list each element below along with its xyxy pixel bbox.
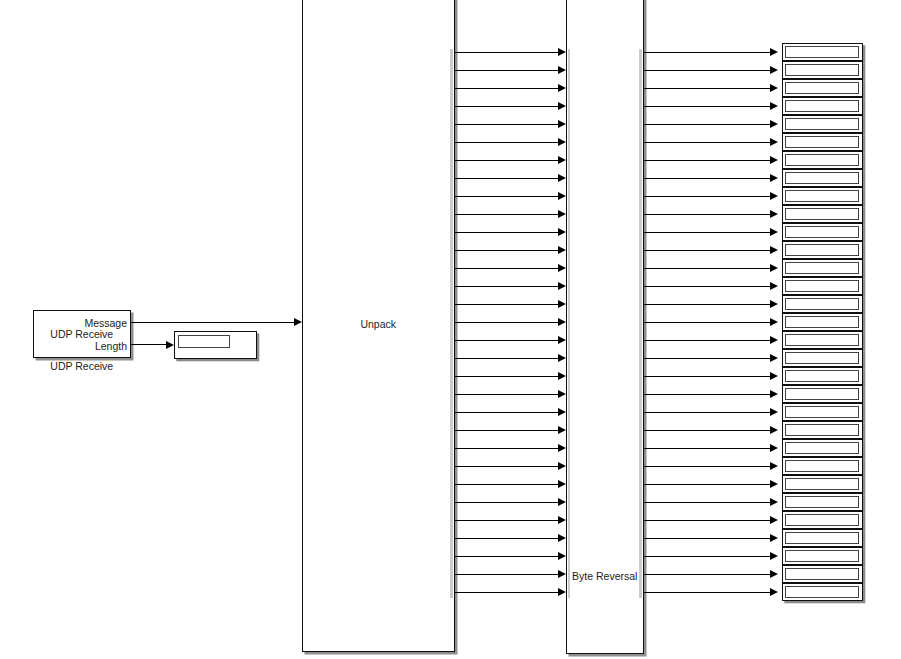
arrowhead-icon: [558, 354, 566, 362]
display-value-box: [785, 226, 859, 238]
wire-byte-reversal-to-display-2[interactable]: [644, 70, 771, 72]
wire-unpack-to-byte-reversal-30[interactable]: [454, 574, 558, 576]
wire-unpack-to-byte-reversal-2[interactable]: [454, 70, 558, 72]
display-block-24[interactable]: [782, 457, 863, 475]
display-block-15[interactable]: [782, 295, 863, 313]
arrowhead-icon: [558, 570, 566, 578]
display-block-13[interactable]: [782, 259, 863, 277]
wire-message-to-unpack[interactable]: [131, 322, 295, 324]
arrowhead-icon: [770, 354, 778, 362]
arrowhead-icon: [558, 84, 566, 92]
byte-reversal-output-port-numbers-smear: [639, 49, 642, 598]
display-value-box: [785, 352, 859, 364]
arrowhead-icon: [770, 408, 778, 416]
arrowhead-icon: [770, 102, 778, 110]
wire-unpack-to-byte-reversal-24[interactable]: [454, 466, 558, 468]
display-value-box: [785, 244, 859, 256]
display-block-28[interactable]: [782, 529, 863, 547]
arrowhead-icon: [770, 588, 778, 596]
display-block-22[interactable]: [782, 421, 863, 439]
wire-unpack-to-byte-reversal-11[interactable]: [454, 232, 558, 234]
wire-unpack-to-byte-reversal-4[interactable]: [454, 106, 558, 108]
arrowhead-icon: [558, 138, 566, 146]
arrowhead-icon: [770, 570, 778, 578]
display-value-box: [785, 154, 859, 166]
arrowhead-icon: [770, 264, 778, 272]
wire-unpack-to-byte-reversal-31[interactable]: [454, 592, 558, 594]
display-block-4[interactable]: [782, 97, 863, 115]
arrowhead-icon: [558, 336, 566, 344]
arrowhead-icon: [558, 102, 566, 110]
display-block-18[interactable]: [782, 349, 863, 367]
wire-byte-reversal-to-display-26[interactable]: [644, 502, 771, 504]
arrowhead-icon: [558, 588, 566, 596]
display-block-10[interactable]: [782, 205, 863, 223]
arrowhead-icon: [558, 426, 566, 434]
display-value-box: [785, 298, 859, 310]
wire-byte-reversal-to-display-22[interactable]: [644, 430, 771, 432]
wire-unpack-to-byte-reversal-12[interactable]: [454, 250, 558, 252]
arrowhead-icon: [770, 282, 778, 290]
display-value-box: [785, 532, 859, 544]
arrowhead-icon: [770, 552, 778, 560]
wire-unpack-to-byte-reversal-25[interactable]: [454, 484, 558, 486]
display-value-box: [785, 64, 859, 76]
wire-byte-reversal-to-display-27[interactable]: [644, 520, 771, 522]
simulink-diagram-canvas: Message UDP Receive Length UDP Receive U…: [0, 0, 901, 659]
arrowhead-icon: [558, 444, 566, 452]
display-value-box: [785, 442, 859, 454]
byte-reversal-input-port-numbers-smear: [568, 49, 571, 598]
wire-byte-reversal-to-display-24[interactable]: [644, 466, 771, 468]
wire-unpack-to-byte-reversal-7[interactable]: [454, 160, 558, 162]
udp-output-port-label-length: Length: [95, 340, 127, 352]
arrowhead-icon: [770, 372, 778, 380]
arrowhead-icon: [770, 120, 778, 128]
wire-unpack-to-byte-reversal-19[interactable]: [454, 376, 558, 378]
display-value-box: [785, 586, 859, 598]
wire-byte-reversal-to-display-23[interactable]: [644, 448, 771, 450]
arrowhead-icon: [558, 300, 566, 308]
arrowhead-icon: [558, 66, 566, 74]
wire-byte-reversal-to-display-16[interactable]: [644, 322, 771, 324]
wire-unpack-to-byte-reversal-3[interactable]: [454, 88, 558, 90]
arrowhead-icon: [558, 156, 566, 164]
arrowhead-icon: [558, 282, 566, 290]
arrowhead-icon: [558, 264, 566, 272]
display-value-box: [785, 208, 859, 220]
arrowhead-icon: [558, 534, 566, 542]
wire-byte-reversal-to-display-5[interactable]: [644, 124, 771, 126]
wire-byte-reversal-to-display-21[interactable]: [644, 412, 771, 414]
arrowhead-icon: [558, 192, 566, 200]
arrowhead-icon: [558, 48, 566, 56]
display-block-27[interactable]: [782, 511, 863, 529]
display-block-17[interactable]: [782, 331, 863, 349]
display-block-1[interactable]: [782, 43, 863, 61]
wire-unpack-to-byte-reversal-13[interactable]: [454, 268, 558, 270]
display-value-box: [178, 335, 230, 349]
display-block-6[interactable]: [782, 133, 863, 151]
display-value-box: [785, 100, 859, 112]
arrowhead-icon: [770, 174, 778, 182]
wire-unpack-to-byte-reversal-26[interactable]: [454, 502, 558, 504]
wire-unpack-to-byte-reversal-10[interactable]: [454, 214, 558, 216]
display-block-19[interactable]: [782, 367, 863, 385]
arrowhead-icon: [558, 228, 566, 236]
wire-unpack-to-byte-reversal-20[interactable]: [454, 394, 558, 396]
arrowhead-icon: [558, 480, 566, 488]
display-value-box: [785, 136, 859, 148]
wire-unpack-to-byte-reversal-27[interactable]: [454, 520, 558, 522]
display-value-box: [785, 550, 859, 562]
display-block-11[interactable]: [782, 223, 863, 241]
arrowhead-icon: [166, 341, 174, 349]
display-value-box: [785, 316, 859, 328]
arrowhead-icon: [770, 228, 778, 236]
display-block-23[interactable]: [782, 439, 863, 457]
arrowhead-icon: [770, 390, 778, 398]
wire-unpack-to-byte-reversal-18[interactable]: [454, 358, 558, 360]
wire-byte-reversal-to-display-18[interactable]: [644, 358, 771, 360]
arrowhead-icon: [558, 390, 566, 398]
arrowhead-icon: [770, 534, 778, 542]
arrowhead-icon: [770, 192, 778, 200]
wire-byte-reversal-to-display-1[interactable]: [644, 52, 771, 54]
wire-byte-reversal-to-display-15[interactable]: [644, 304, 771, 306]
udp-receive-block[interactable]: Message UDP Receive Length: [33, 310, 131, 358]
udp-receive-caption: UDP Receive: [33, 360, 131, 372]
arrowhead-icon: [558, 120, 566, 128]
wire-byte-reversal-to-display-10[interactable]: [644, 214, 771, 216]
byte-reversal-block-label: Byte Reversal: [567, 570, 643, 582]
display-block-3[interactable]: [782, 79, 863, 97]
arrowhead-icon: [770, 480, 778, 488]
wire-byte-reversal-to-display-30[interactable]: [644, 574, 771, 576]
wire-byte-reversal-to-display-7[interactable]: [644, 160, 771, 162]
display-value-box: [785, 478, 859, 490]
wire-byte-reversal-to-display-17[interactable]: [644, 340, 771, 342]
arrowhead-icon: [770, 318, 778, 326]
wire-unpack-to-byte-reversal-14[interactable]: [454, 286, 558, 288]
display-value-box: [785, 46, 859, 58]
wire-unpack-to-byte-reversal-6[interactable]: [454, 142, 558, 144]
display-value-box: [785, 460, 859, 472]
arrowhead-icon: [770, 462, 778, 470]
wire-byte-reversal-to-display-8[interactable]: [644, 178, 771, 180]
display-value-box: [785, 370, 859, 382]
wire-byte-reversal-to-display-25[interactable]: [644, 484, 771, 486]
arrowhead-icon: [770, 156, 778, 164]
length-display-block[interactable]: [174, 331, 257, 359]
display-block-7[interactable]: [782, 151, 863, 169]
display-block-5[interactable]: [782, 115, 863, 133]
wire-byte-reversal-to-display-14[interactable]: [644, 286, 771, 288]
arrowhead-icon: [770, 516, 778, 524]
arrowhead-icon: [558, 516, 566, 524]
wire-unpack-to-byte-reversal-17[interactable]: [454, 340, 558, 342]
arrowhead-icon: [770, 426, 778, 434]
wire-byte-reversal-to-display-11[interactable]: [644, 232, 771, 234]
arrowhead-icon: [558, 318, 566, 326]
arrowhead-icon: [558, 498, 566, 506]
arrowhead-icon: [770, 66, 778, 74]
wire-byte-reversal-to-display-19[interactable]: [644, 376, 771, 378]
arrowhead-icon: [770, 246, 778, 254]
display-value-box: [785, 424, 859, 436]
wire-unpack-to-byte-reversal-28[interactable]: [454, 538, 558, 540]
wire-unpack-to-byte-reversal-1[interactable]: [454, 52, 558, 54]
unpack-block[interactable]: Unpack: [302, 0, 455, 652]
wire-byte-reversal-to-display-28[interactable]: [644, 538, 771, 540]
display-value-box: [785, 118, 859, 130]
display-value-box: [785, 172, 859, 184]
display-block-25[interactable]: [782, 475, 863, 493]
wire-byte-reversal-to-display-13[interactable]: [644, 268, 771, 270]
wire-unpack-to-byte-reversal-9[interactable]: [454, 196, 558, 198]
display-value-box: [785, 262, 859, 274]
wire-unpack-to-byte-reversal-15[interactable]: [454, 304, 558, 306]
wire-unpack-to-byte-reversal-5[interactable]: [454, 124, 558, 126]
arrowhead-icon: [770, 498, 778, 506]
arrowhead-icon: [558, 210, 566, 218]
display-block-21[interactable]: [782, 403, 863, 421]
wire-byte-reversal-to-display-20[interactable]: [644, 394, 771, 396]
udp-receive-block-label: UDP Receive: [34, 328, 130, 340]
display-block-8[interactable]: [782, 169, 863, 187]
display-block-31[interactable]: [782, 583, 863, 601]
display-block-29[interactable]: [782, 547, 863, 565]
byte-reversal-block[interactable]: Byte Reversal: [566, 0, 644, 654]
display-block-30[interactable]: [782, 565, 863, 583]
unpack-block-label: Unpack: [303, 318, 454, 330]
wire-byte-reversal-to-display-6[interactable]: [644, 142, 771, 144]
wire-byte-reversal-to-display-4[interactable]: [644, 106, 771, 108]
display-value-box: [785, 82, 859, 94]
display-block-9[interactable]: [782, 187, 863, 205]
display-value-box: [785, 280, 859, 292]
display-block-12[interactable]: [782, 241, 863, 259]
arrowhead-icon: [770, 444, 778, 452]
arrowhead-icon: [770, 48, 778, 56]
arrowhead-icon: [770, 336, 778, 344]
arrowhead-icon: [770, 84, 778, 92]
arrowhead-icon: [770, 138, 778, 146]
arrowhead-icon: [558, 246, 566, 254]
wire-byte-reversal-to-display-31[interactable]: [644, 592, 771, 594]
wire-byte-reversal-to-display-3[interactable]: [644, 88, 771, 90]
display-value-box: [785, 568, 859, 580]
arrowhead-icon: [770, 210, 778, 218]
arrowhead-icon: [558, 462, 566, 470]
wire-unpack-to-byte-reversal-29[interactable]: [454, 556, 558, 558]
display-value-box: [785, 388, 859, 400]
wire-byte-reversal-to-display-9[interactable]: [644, 196, 771, 198]
arrowhead-icon: [558, 174, 566, 182]
wire-byte-reversal-to-display-29[interactable]: [644, 556, 771, 558]
display-value-box: [785, 334, 859, 346]
wire-unpack-to-byte-reversal-23[interactable]: [454, 448, 558, 450]
arrowhead-icon: [294, 318, 302, 326]
wire-unpack-to-byte-reversal-21[interactable]: [454, 412, 558, 414]
wire-length-to-display[interactable]: [131, 344, 167, 346]
arrowhead-icon: [558, 552, 566, 560]
wire-unpack-to-byte-reversal-22[interactable]: [454, 430, 558, 432]
wire-unpack-to-byte-reversal-8[interactable]: [454, 178, 558, 180]
display-value-box: [785, 514, 859, 526]
arrowhead-icon: [558, 408, 566, 416]
arrowhead-icon: [770, 300, 778, 308]
wire-unpack-to-byte-reversal-16[interactable]: [454, 322, 558, 324]
display-block-16[interactable]: [782, 313, 863, 331]
display-block-20[interactable]: [782, 385, 863, 403]
arrowhead-icon: [558, 372, 566, 380]
display-value-box: [785, 496, 859, 508]
display-value-box: [785, 406, 859, 418]
display-value-box: [785, 190, 859, 202]
display-block-26[interactable]: [782, 493, 863, 511]
display-block-2[interactable]: [782, 61, 863, 79]
wire-byte-reversal-to-display-12[interactable]: [644, 250, 771, 252]
display-block-14[interactable]: [782, 277, 863, 295]
